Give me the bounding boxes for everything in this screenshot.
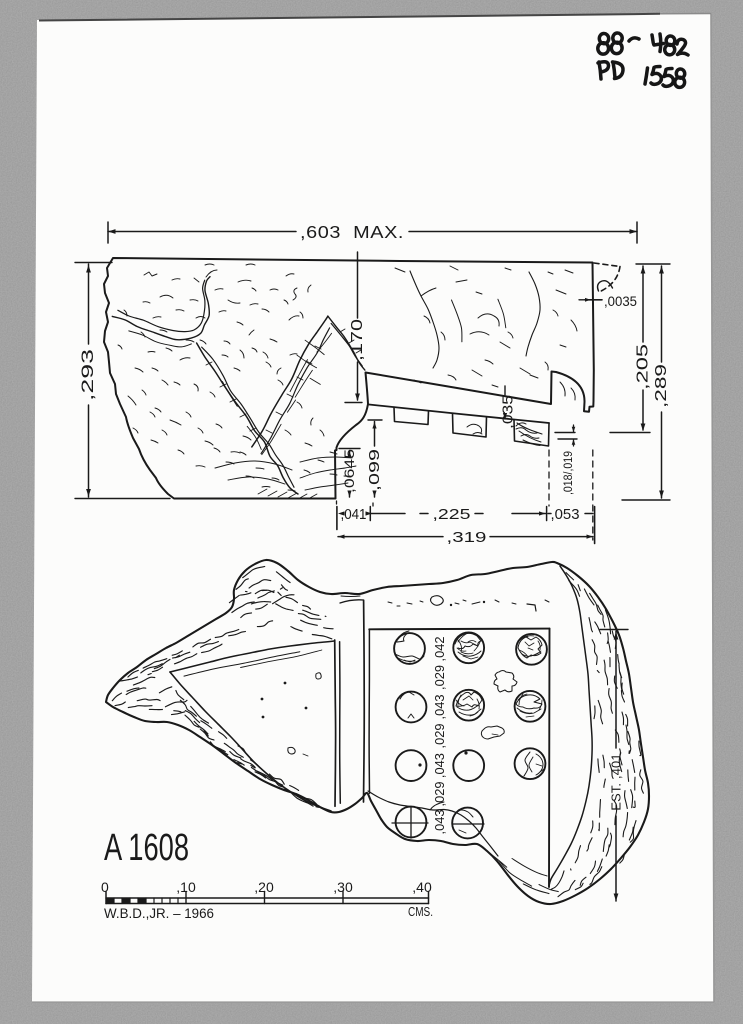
svg-text:,029: ,029 [433, 665, 447, 690]
svg-text:W.B.D.,JR. – 1966: W.B.D.,JR. – 1966 [104, 906, 214, 921]
svg-text:,293: ,293 [78, 349, 97, 401]
svg-text:,041: ,041 [341, 507, 367, 523]
svg-text:,205: ,205 [635, 344, 652, 390]
svg-text:,0035: ,0035 [604, 294, 637, 309]
svg-text:,603 MAX.: ,603 MAX. [300, 222, 404, 242]
svg-text:,029: ,029 [433, 781, 447, 806]
svg-text:,289: ,289 [653, 364, 670, 408]
svg-text:,029: ,029 [433, 723, 447, 748]
svg-text:,10: ,10 [176, 879, 196, 895]
svg-text:,043: ,043 [433, 694, 447, 719]
svg-text:,40: ,40 [412, 879, 432, 895]
svg-text:A 1608: A 1608 [104, 827, 189, 869]
svg-text:,042: ,042 [433, 636, 447, 661]
svg-text:EST. ,401: EST. ,401 [609, 753, 624, 810]
svg-text:,053: ,053 [551, 507, 580, 523]
svg-text:0: 0 [101, 879, 109, 895]
svg-text:,30: ,30 [333, 879, 353, 895]
svg-text:,20: ,20 [254, 879, 274, 895]
svg-text:,043: ,043 [433, 753, 447, 778]
svg-text:CMS.: CMS. [408, 905, 433, 919]
svg-text:,043: ,043 [433, 809, 447, 834]
svg-text:,099: ,099 [367, 449, 383, 491]
svg-text:,225: ,225 [433, 507, 471, 523]
svg-text:,170: ,170 [349, 319, 366, 361]
svg-text:,319: ,319 [447, 530, 487, 546]
svg-text:,0645: ,0645 [342, 449, 357, 493]
svg-text:,018/,019: ,018/,019 [563, 451, 575, 495]
svg-text:,035: ,035 [501, 395, 517, 429]
